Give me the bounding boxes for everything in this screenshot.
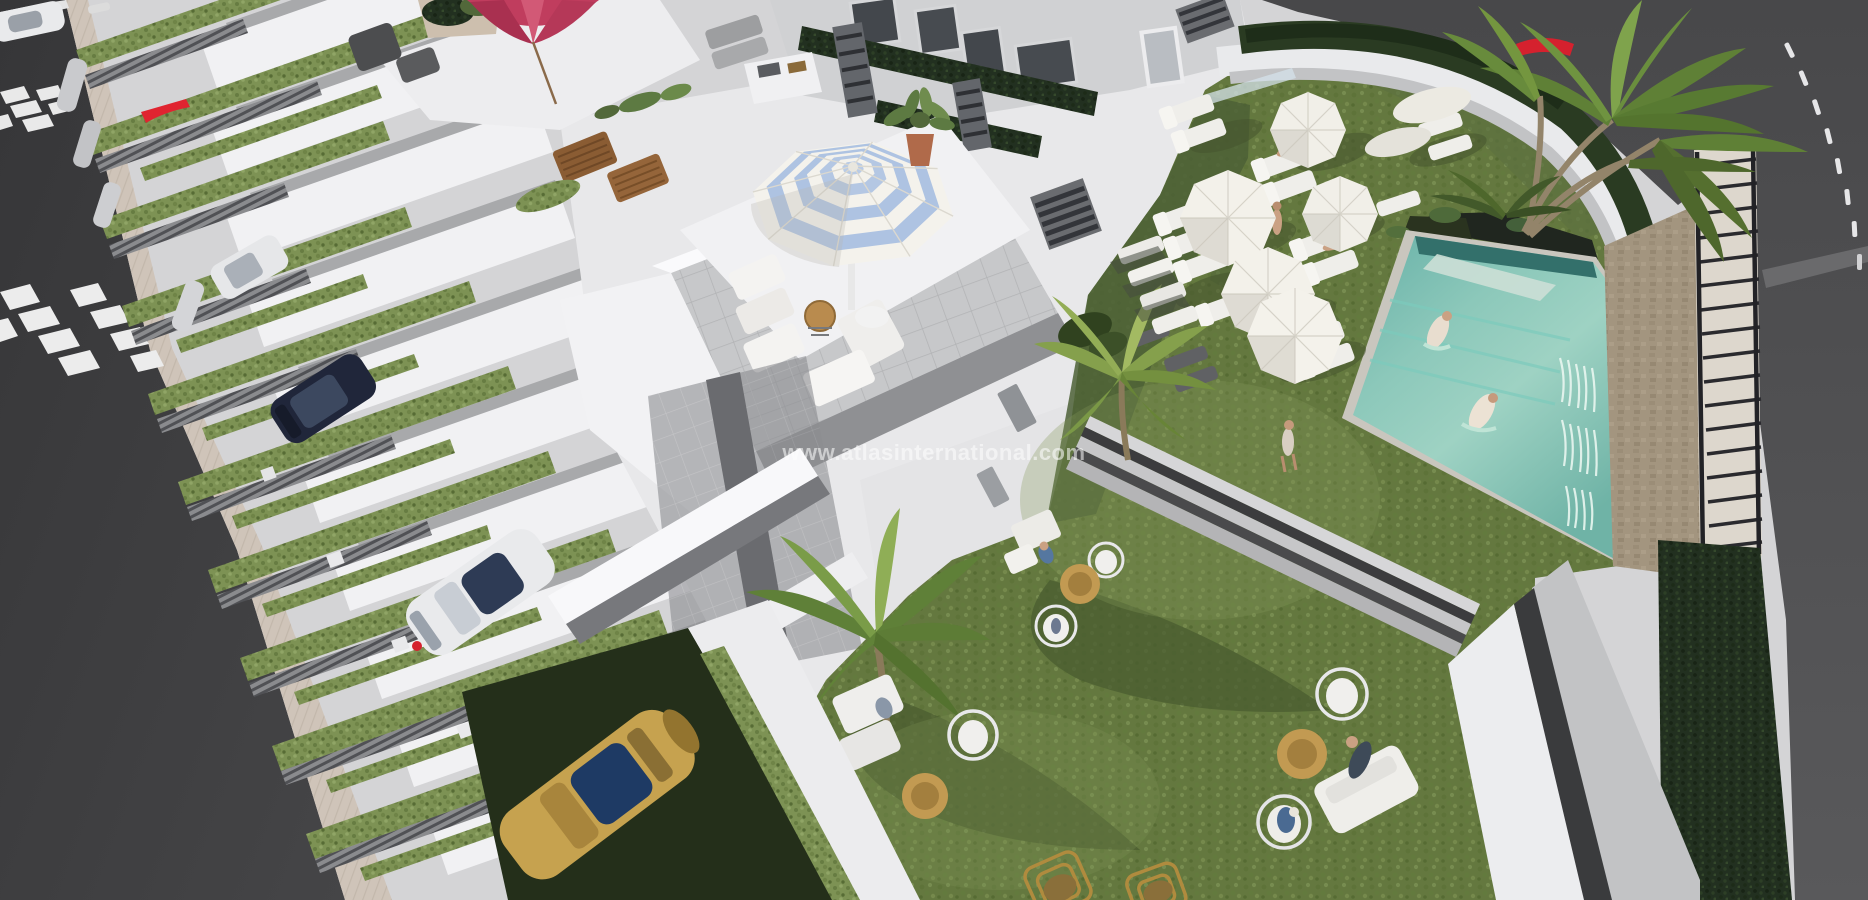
svg-text:www.atlasinternational.com: www.atlasinternational.com — [781, 440, 1085, 465]
